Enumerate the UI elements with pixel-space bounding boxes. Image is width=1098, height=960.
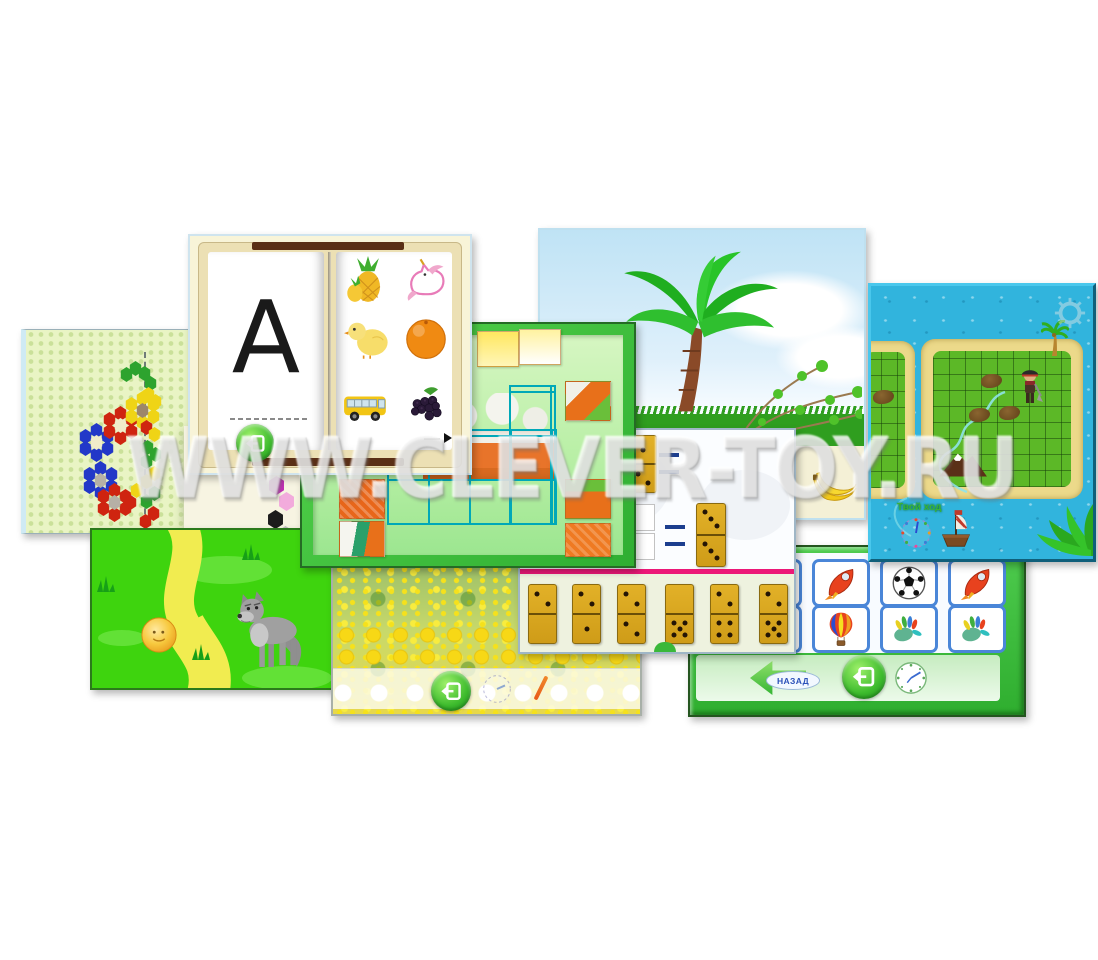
unicorn-picture[interactable] — [402, 256, 450, 304]
card-soccer-ball[interactable] — [880, 559, 938, 607]
exit-button[interactable] — [431, 671, 471, 711]
card-rocket[interactable] — [812, 559, 870, 607]
corner-palm-leaves — [1029, 486, 1093, 558]
collage-canvas: Твой ход — [0, 0, 1098, 960]
card-rocket[interactable] — [948, 559, 1006, 607]
kolobok-character[interactable] — [140, 616, 178, 654]
puzzle-piece[interactable] — [339, 521, 385, 557]
hot-air-balloon-icon — [823, 611, 859, 647]
wolf-character — [232, 582, 314, 680]
card-handprint[interactable] — [948, 605, 1006, 653]
gear-icon[interactable] — [1053, 296, 1087, 330]
pirate-character[interactable] — [1017, 368, 1043, 408]
handprint-icon — [891, 611, 927, 647]
back-button-label: НАЗАД — [777, 676, 809, 686]
clock-icon[interactable] — [894, 661, 928, 695]
tray-domino[interactable] — [528, 584, 557, 644]
flower-toolbar — [333, 668, 640, 709]
rocket-icon — [959, 565, 995, 601]
card-handprint[interactable] — [880, 605, 938, 653]
puzzle-piece[interactable] — [565, 381, 611, 421]
rocket-icon — [823, 565, 859, 601]
puzzle-piece[interactable] — [519, 329, 561, 365]
back-button[interactable]: НАЗАД — [750, 659, 820, 699]
tray-domino[interactable] — [710, 584, 739, 644]
tray-domino[interactable] — [572, 584, 601, 644]
letter-display: А — [208, 262, 324, 412]
book-spine-top — [252, 242, 404, 250]
chick-picture[interactable] — [344, 314, 392, 362]
orange-picture[interactable] — [402, 314, 450, 362]
clock-icon[interactable] — [481, 673, 513, 705]
puzzle-piece[interactable] — [477, 331, 519, 367]
card-hot-air-balloon[interactable] — [812, 605, 870, 653]
site-watermark: WWW.CLEVER-TOY.RU — [126, 420, 1017, 518]
equals-sign — [665, 525, 685, 546]
cards-toolbar: НАЗАД — [696, 655, 1000, 701]
timer-icon — [899, 516, 933, 550]
exit-button[interactable] — [842, 655, 886, 699]
tray-domino[interactable] — [759, 584, 788, 644]
tray-domino[interactable] — [665, 584, 694, 644]
puzzle-piece[interactable] — [565, 523, 611, 557]
handprint-icon — [959, 611, 995, 647]
tray-domino[interactable] — [617, 584, 646, 644]
pencil-icon[interactable] — [534, 675, 549, 700]
pineapples-picture[interactable] — [344, 256, 392, 304]
soccer-ball-icon — [891, 565, 927, 601]
